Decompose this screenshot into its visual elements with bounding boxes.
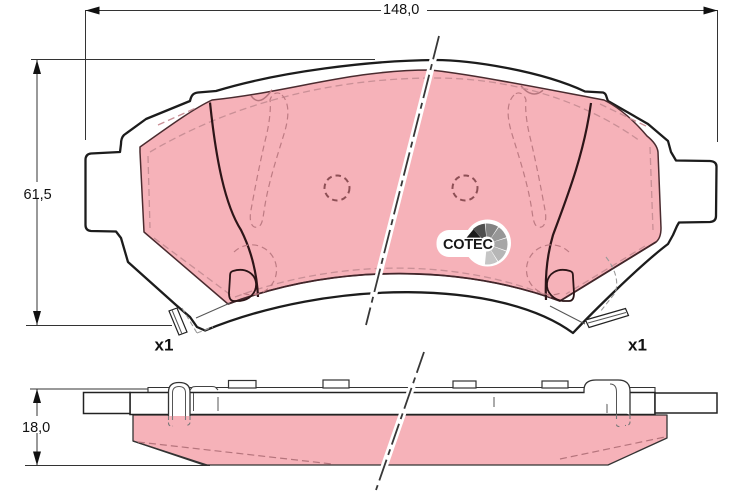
svg-text:18,0: 18,0	[22, 420, 50, 436]
svg-text:x1: x1	[628, 336, 647, 355]
svg-text:x1: x1	[155, 336, 174, 355]
svg-text:148,0: 148,0	[383, 2, 419, 18]
svg-text:COTEC: COTEC	[443, 237, 493, 253]
svg-text:61,5: 61,5	[24, 187, 52, 203]
